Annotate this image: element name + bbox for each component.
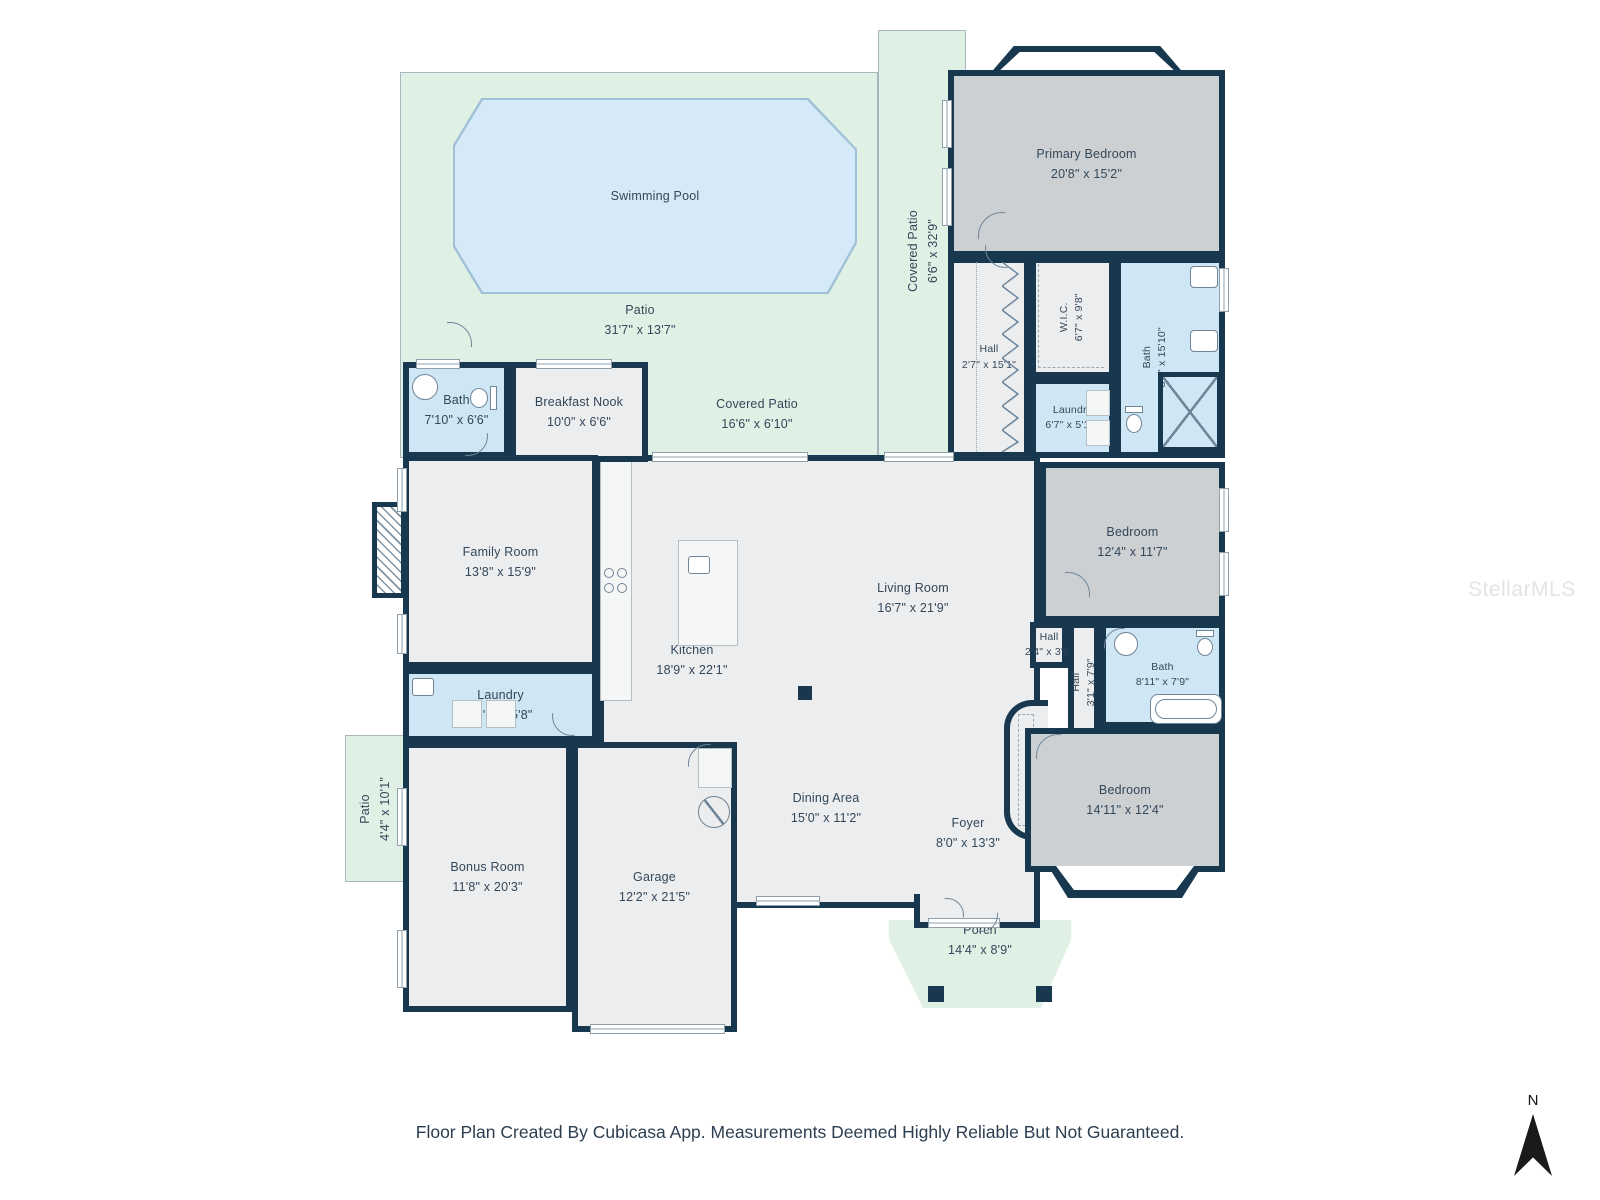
hall-vertical: Hall 3'1" x 7'9" <box>1068 622 1100 742</box>
wic-shelving <box>1038 264 1104 368</box>
window <box>884 452 954 462</box>
room-name: Primary Bedroom <box>1036 147 1136 161</box>
floor-plan: Covered Patio 6'6" x 32'9" Swimming Pool… <box>0 0 1600 1200</box>
room-name: Family Room <box>463 545 539 559</box>
room-name: Bonus Room <box>450 860 524 874</box>
porch-column <box>928 986 944 1002</box>
garage-label: Garage 12'2" x 21'5" <box>619 867 690 907</box>
covered-patio-rear-label: Covered Patio 16'6" x 6'10" <box>677 394 837 434</box>
dryer <box>1086 420 1110 446</box>
dryer <box>486 700 516 728</box>
stove-burner <box>604 583 614 593</box>
room-dims: 15'0" x 11'2" <box>791 811 861 825</box>
room-name: Bath <box>1151 661 1173 673</box>
washer <box>452 700 482 728</box>
room-name: Dining Area <box>793 791 860 805</box>
bedroom-rear-label: Bedroom 14'11" x 12'4" <box>1086 780 1163 820</box>
room-name: Covered Patio <box>906 210 920 292</box>
bonus-room: Bonus Room 11'8" x 20'3" <box>403 742 572 1012</box>
room-dims: 7'10" x 6'6" <box>424 413 488 427</box>
room-dims: 18'9" x 22'1" <box>656 663 727 677</box>
vanity-sink <box>1190 266 1218 288</box>
bathtub-inner <box>1155 699 1217 719</box>
water-heater <box>698 796 730 828</box>
room-dims: 31'7" x 13'7" <box>604 323 675 337</box>
room-dims: 20'8" x 15'2" <box>1051 167 1122 181</box>
kitchen-counter <box>600 457 632 701</box>
room-name: Living Room <box>877 581 949 595</box>
toilet-tank <box>1125 406 1143 413</box>
closet-zigzag <box>1002 262 1022 452</box>
window <box>397 614 407 654</box>
covered-patio-side-label: Covered Patio 6'6" x 32'9" <box>903 141 943 361</box>
room-dims: 8'11" x 7'9" <box>1136 676 1189 688</box>
fireplace <box>372 502 406 598</box>
bonus-room-label: Bonus Room 11'8" x 20'3" <box>450 857 524 897</box>
hall-small: Hall 2'4" x 3'6" <box>1030 622 1068 668</box>
window <box>397 468 407 512</box>
room-dims: 12'2" x 21'5" <box>619 890 690 904</box>
room-name: Hall <box>1040 631 1059 643</box>
washer <box>1086 390 1110 416</box>
room-dims: 4'4" x 10'1" <box>378 776 392 840</box>
closet-track <box>976 262 977 452</box>
window <box>1219 488 1229 532</box>
room-name: Swimming Pool <box>611 189 700 203</box>
room-name: Bath <box>1141 346 1153 368</box>
column <box>798 686 812 700</box>
patio-label: Patio 31'7" x 13'7" <box>560 300 720 340</box>
room-dims: 11'8" x 20'3" <box>452 880 522 894</box>
window <box>536 359 612 369</box>
island-sink <box>688 556 710 574</box>
window <box>397 788 407 846</box>
room-dims: 10'0" x 6'6" <box>547 415 611 429</box>
room-dims: 2'4" x 3'6" <box>1025 646 1073 658</box>
stove-burner <box>617 568 627 578</box>
room-dims: 16'6" x 6'10" <box>721 417 792 431</box>
rear-bay-window-inner <box>1056 866 1194 890</box>
room-dims: 14'4" x 8'9" <box>948 943 1012 957</box>
window <box>416 359 460 369</box>
window <box>942 100 952 148</box>
hall-small-label: Hall 2'4" x 3'6" <box>1025 630 1073 660</box>
compass-north-label: N <box>1510 1092 1556 1109</box>
room-dims: 3'1" x 7'9" <box>1085 658 1097 706</box>
room-dims: 8'0" x 13'3" <box>936 836 1000 850</box>
family-room-label: Family Room 13'8" x 15'9" <box>463 542 539 582</box>
room-name: Bedroom <box>1099 783 1151 797</box>
toilet-tank <box>490 386 497 410</box>
window <box>942 168 952 226</box>
room-name: Hall <box>1070 673 1082 692</box>
toilet-bowl <box>1126 414 1142 433</box>
sliding-door <box>652 452 808 462</box>
hall-vertical-label: Hall 3'1" x 7'9" <box>1069 658 1099 706</box>
room-dims: 14'11" x 12'4" <box>1086 803 1163 817</box>
dining-area-label: Dining Area 15'0" x 11'2" <box>746 788 906 828</box>
sink <box>412 374 438 400</box>
window <box>397 930 407 988</box>
swimming-pool: Swimming Pool <box>455 100 855 292</box>
pool-label: Swimming Pool <box>611 186 700 206</box>
window <box>1219 552 1229 596</box>
room-name: Covered Patio <box>716 397 798 411</box>
stove-burner <box>617 583 627 593</box>
footer-disclaimer: Floor Plan Created By Cubicasa App. Meas… <box>0 1122 1600 1143</box>
family-room: Family Room 13'8" x 15'9" <box>403 455 598 668</box>
room-name: Patio <box>625 303 655 317</box>
primary-bedroom-label: Primary Bedroom 20'8" x 15'2" <box>1036 144 1136 184</box>
kitchen-label: Kitchen 18'9" x 22'1" <box>612 640 772 680</box>
room-name: Bath <box>443 393 470 407</box>
breakfast-nook-label: Breakfast Nook 10'0" x 6'6" <box>535 392 623 432</box>
room-dims: 12'4" x 11'7" <box>1097 545 1167 559</box>
room-name: Garage <box>633 870 676 884</box>
porch-column <box>1036 986 1052 1002</box>
toilet-tank <box>1196 630 1214 637</box>
room-dims: 6'6" x 32'9" <box>926 219 940 283</box>
living-room-label: Living Room 16'7" x 21'9" <box>833 578 993 618</box>
watermark: StellarMLS <box>1468 578 1576 602</box>
laundry-sink <box>412 678 434 696</box>
shower <box>1158 372 1222 452</box>
room-dims: 16'7" x 21'9" <box>877 601 948 615</box>
room-name: Patio <box>358 794 372 824</box>
stove-burner <box>604 568 614 578</box>
patio-side-area: Patio 4'4" x 10'1" <box>345 735 405 882</box>
bedroom-mid-label: Bedroom 12'4" x 11'7" <box>1097 522 1167 562</box>
window <box>1219 268 1229 312</box>
breakfast-nook: Breakfast Nook 10'0" x 6'6" <box>510 362 648 462</box>
room-dims: 13'8" x 15'9" <box>465 565 536 579</box>
room-name: Hall <box>980 343 999 355</box>
bedroom-mid: Bedroom 12'4" x 11'7" <box>1040 462 1225 622</box>
toilet-bowl <box>1197 638 1213 656</box>
room-name: Breakfast Nook <box>535 395 623 409</box>
vanity-sink <box>1190 330 1218 352</box>
window <box>756 896 820 906</box>
patio-side-label: Patio 4'4" x 10'1" <box>355 776 395 840</box>
garage-door <box>590 1024 725 1034</box>
bath-hall-label: Bath 8'11" x 7'9" <box>1136 660 1189 690</box>
toilet-bowl <box>470 388 488 408</box>
room-name: Bedroom <box>1106 525 1158 539</box>
room-name: Foyer <box>952 816 985 830</box>
